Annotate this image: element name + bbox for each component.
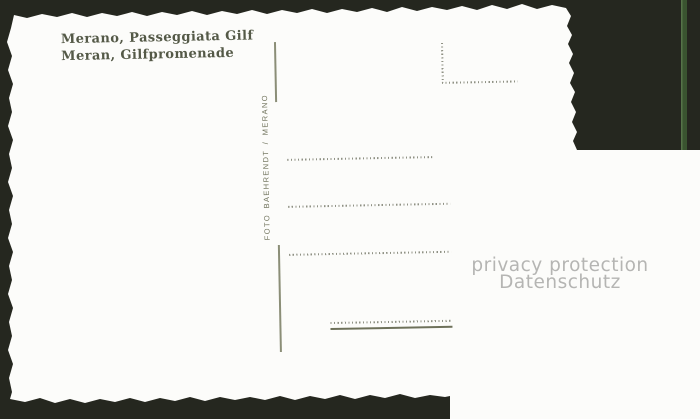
stamp-box-corner	[441, 41, 518, 82]
address-underline	[330, 326, 452, 330]
divider-line-lower	[278, 245, 282, 352]
address-line-1	[287, 156, 432, 161]
stamp-box-corner-horizontal-line	[442, 80, 518, 83]
stamp-box-corner-vertical-line	[441, 43, 444, 83]
postcard-caption: Merano, Passeggiata Gilf Meran, Gilfprom…	[61, 28, 218, 65]
divider-line-upper	[274, 42, 277, 102]
printed-layer: Merano, Passeggiata Gilf Meran, Gilfprom…	[0, 0, 700, 419]
caption-line-german: Meran, Gilfpromenade	[61, 45, 217, 65]
address-line-2	[288, 203, 450, 208]
address-line-4	[330, 320, 452, 324]
privacy-watermark-line-de: Datenschutz	[430, 274, 690, 291]
publisher-credit: FOTO BAEHRENDT / MERANO	[260, 108, 272, 240]
address-line-3	[289, 251, 451, 256]
postcard-back-scan: Merano, Passeggiata Gilf Meran, Gilfprom…	[0, 0, 700, 419]
privacy-watermark: privacy protection Datenschutz	[430, 257, 690, 291]
